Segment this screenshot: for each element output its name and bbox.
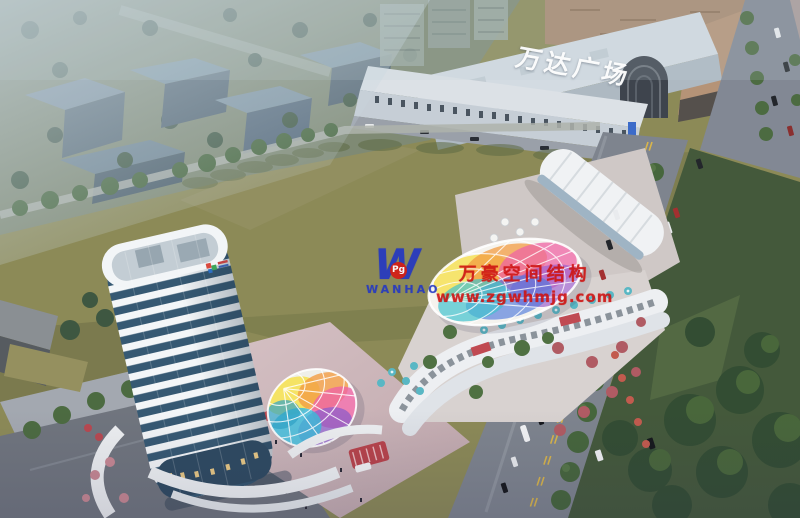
watermark: W Pg WANHAO 万豪空间结构 www.zgwhmjg.com [362, 250, 592, 310]
aerial-rendering: 万达广场 W Pg WANHAO 万豪空间结构 www.zgwhmjg.com [0, 0, 800, 518]
watermark-text: 万豪空间结构 www.zgwhmjg.com [436, 260, 613, 306]
watermark-company-name: 万豪空间结构 [436, 260, 613, 286]
watermark-website: www.zgwhmjg.com [436, 288, 613, 306]
watermark-logo-icon: W Pg WANHAO [362, 250, 440, 302]
watermark-logo-name: WANHAO [366, 283, 440, 296]
watermark-logo-badge: Pg [390, 262, 407, 279]
